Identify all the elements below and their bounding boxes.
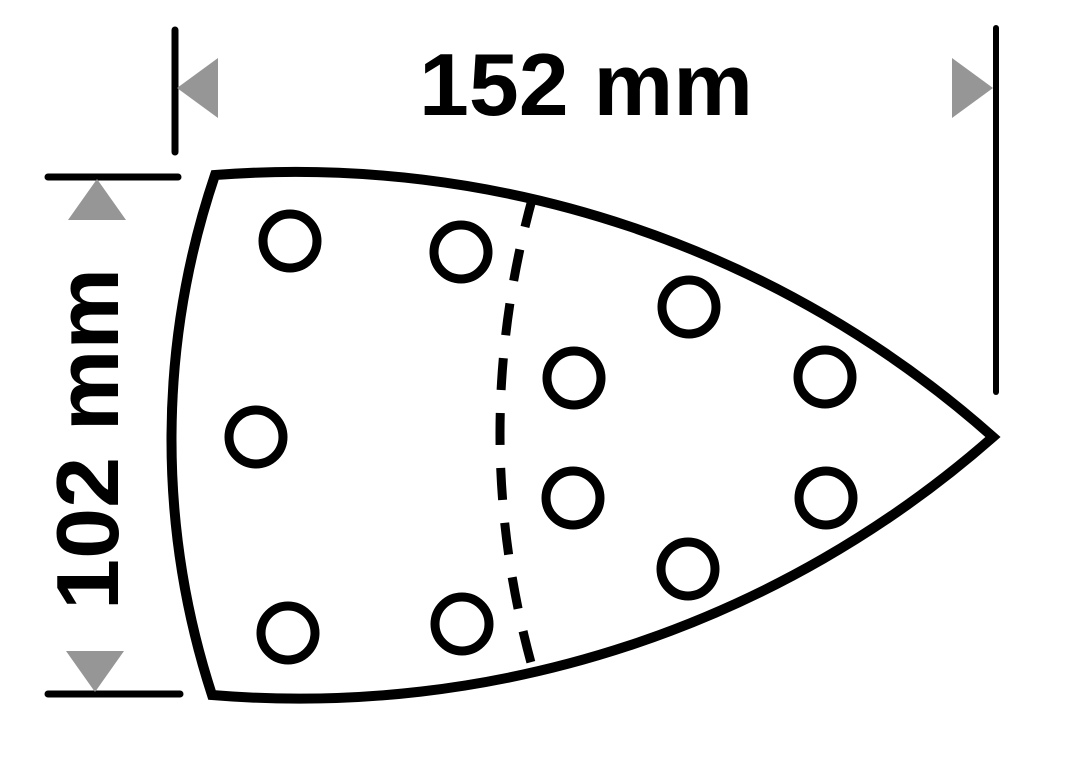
- sanding-pad-dimension-diagram: 152 mm 102 mm: [0, 0, 1080, 775]
- width-dimension-label: 152 mm: [419, 35, 753, 134]
- dust-hole: [547, 351, 601, 405]
- height-arrowhead-up-icon: [68, 179, 126, 220]
- height-dimension-label: 102 mm: [38, 268, 137, 610]
- dust-hole: [261, 606, 315, 660]
- dust-hole: [661, 542, 715, 596]
- width-arrowhead-left-icon: [177, 58, 218, 118]
- dust-hole: [662, 280, 716, 334]
- dashed-fold-line: [500, 196, 533, 670]
- diagram-canvas: 152 mm 102 mm: [0, 0, 1080, 775]
- dust-hole: [434, 225, 488, 279]
- height-dimension: 102 mm: [38, 177, 180, 694]
- dust-hole: [229, 410, 283, 464]
- dust-hole: [798, 350, 852, 404]
- dust-hole: [435, 597, 489, 651]
- width-arrowhead-right-icon: [952, 58, 993, 118]
- dust-hole: [263, 214, 317, 268]
- dust-hole: [799, 471, 853, 525]
- height-arrowhead-down-icon: [66, 651, 124, 692]
- dust-hole: [546, 471, 600, 525]
- pad-outline: [171, 172, 993, 699]
